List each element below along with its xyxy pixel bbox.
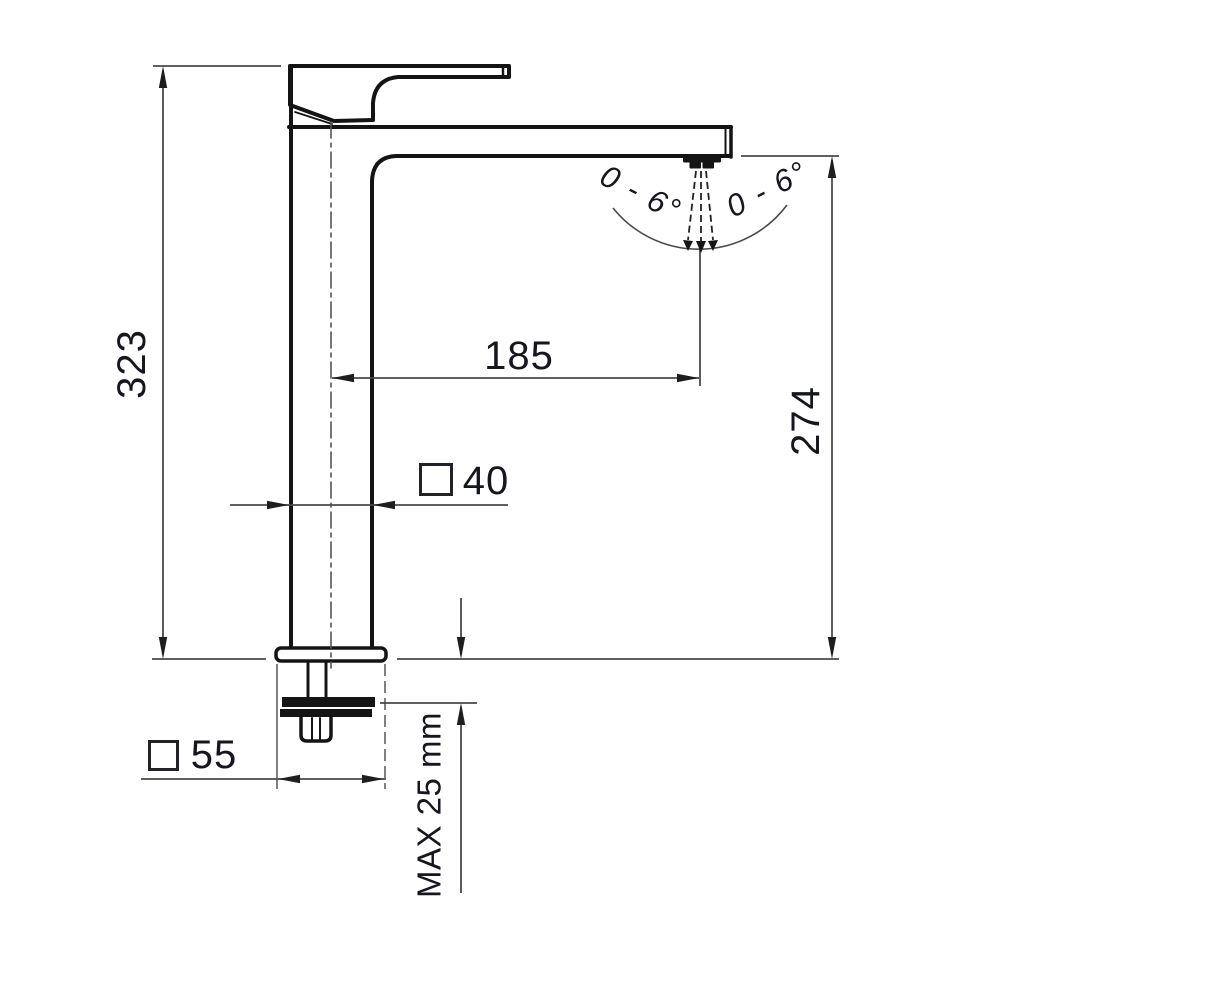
spout-arm [289,127,731,181]
label-spout-reach: 185 [484,336,554,376]
water-stream-arrows [683,171,718,253]
faucet-body [276,66,731,741]
threaded-shank [308,661,326,697]
label-base-square-width: 55 [191,735,238,775]
dimension-323 [153,66,281,654]
label-outlet-height: 274 [786,386,826,456]
aerator-icon [683,156,721,169]
dimension-arrowheads [159,66,836,783]
square-section-icon [148,740,179,771]
mounting-nut [280,697,375,717]
label-total-height: 323 [112,329,152,399]
threaded-stud [301,717,331,741]
label-body-square-width: 40 [463,461,510,501]
label-max-deck-thickness: MAX 25 mm [413,712,446,898]
square-section-icon [419,463,453,496]
faucet-drawing-canvas [0,0,1218,986]
handle-lever [290,66,509,124]
technical-drawing-page: 323 185 274 40 55 MAX 25 mm 0 - 6° 0 - 6… [0,0,1218,986]
